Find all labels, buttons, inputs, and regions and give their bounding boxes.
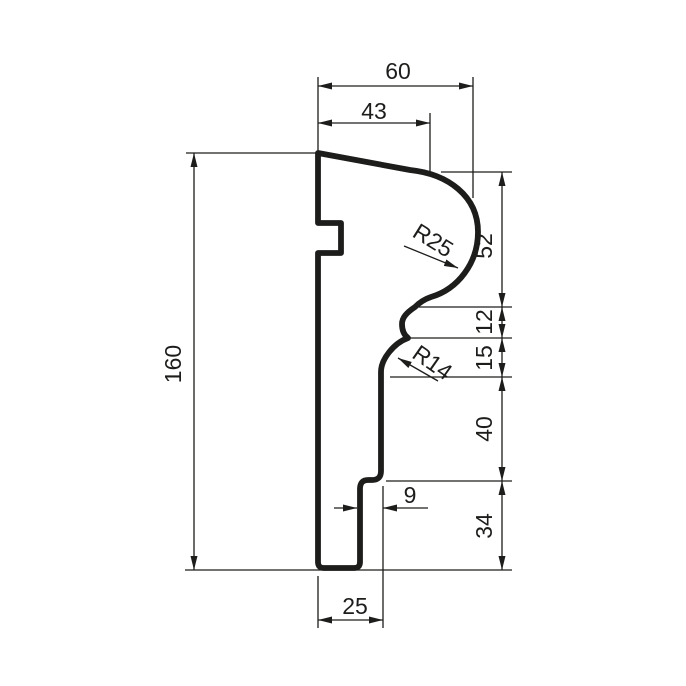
dim-label-34: 34: [471, 513, 497, 539]
dim-label-43: 43: [361, 98, 387, 124]
drawing-canvas: 60 43 160 52 12 15 40 34 9 25 R25 R14: [0, 0, 686, 686]
radius-label-r25: R25: [408, 218, 458, 262]
dimension-lines: [194, 86, 502, 620]
dim-label-60: 60: [385, 58, 411, 84]
dim-label-52: 52: [471, 233, 497, 259]
dim-label-15: 15: [471, 345, 497, 371]
dim-label-160: 160: [160, 345, 186, 383]
dim-label-12: 12: [471, 309, 497, 335]
dim-label-25: 25: [342, 593, 368, 619]
dim-label-9: 9: [404, 482, 417, 508]
dim-label-40: 40: [471, 416, 497, 442]
technical-drawing: 60 43 160 52 12 15 40 34 9 25 R25 R14: [0, 0, 686, 686]
